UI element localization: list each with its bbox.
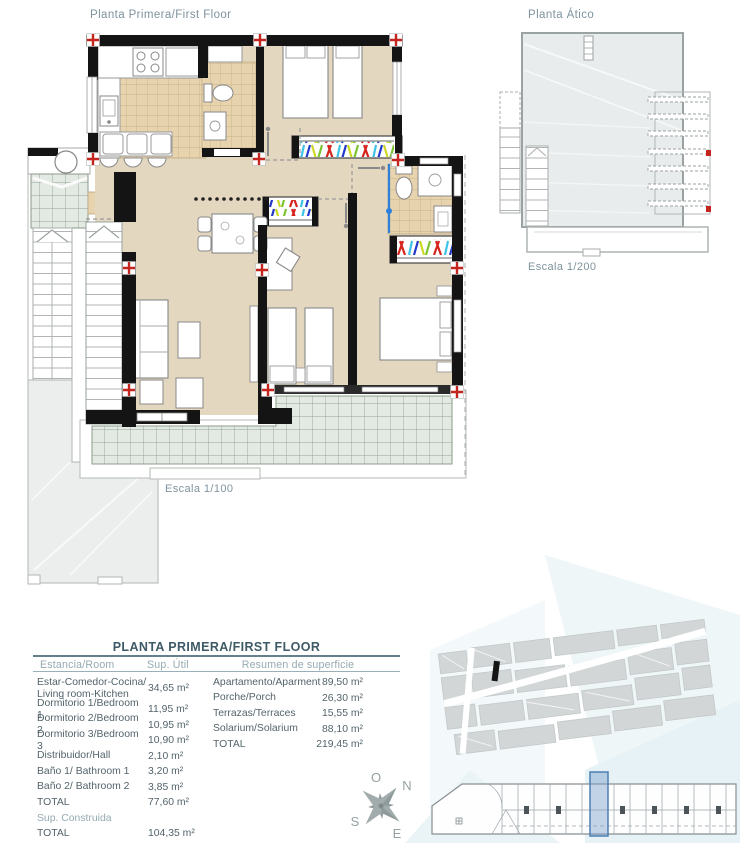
table-row: Porche/Porch 26,30 m²: [213, 691, 363, 707]
floorplan-sheet: { "titles": { "first_floor": "Planta Pri…: [0, 0, 741, 843]
nightstand-icon: [296, 368, 305, 382]
dining-table-icon: [212, 214, 253, 253]
table-rule-header: [33, 671, 400, 672]
column-header-summary: Resumen de superficie: [213, 659, 383, 671]
exterior-staircase: [33, 228, 72, 380]
table-title: PLANTA PRIMERA/FIRST FLOOR: [33, 640, 400, 654]
bathroom-1: [202, 46, 256, 152]
table-rule-top: [33, 655, 400, 657]
sofa-icon: [133, 300, 168, 378]
atico-plan-title: Planta Ático: [528, 9, 594, 21]
useful-total-row: TOTAL 77,60 m²: [37, 795, 209, 811]
nightstand-icon: [437, 286, 452, 296]
kitchen: [98, 46, 206, 167]
wardrobe-bedroom-1: [292, 136, 402, 158]
vanity-icon: [418, 164, 452, 196]
summary-total-row: TOTAL 219,45 m²: [213, 737, 363, 753]
wardrobe-bedroom-3: [390, 236, 460, 263]
table-row: Baño 1/ Bathroom 1 3,20 m²: [37, 764, 209, 780]
room-table: Estar-Comedor-Cocina/ Living room-Kitche…: [37, 675, 209, 842]
compass-south-label: S: [351, 814, 360, 829]
compass-rose-icon: O N S E: [347, 770, 415, 841]
sideboard-icon: [250, 306, 258, 382]
atico-plan: [500, 33, 711, 256]
toilet-icon: [396, 177, 412, 199]
shower-icon: [434, 206, 452, 232]
wardrobe-bedroom-2: [263, 197, 318, 226]
table-row: Apartamento/Aparment 89,50 m²: [213, 675, 363, 691]
bedroom-1: [283, 44, 362, 118]
washbasin-icon: [204, 112, 226, 140]
bedroom-3: [380, 286, 452, 372]
atico-interior-stair: [526, 146, 548, 226]
compass-west-label: O: [371, 770, 381, 785]
compass-north-label: N: [402, 778, 411, 793]
atico-scale-label: Escala 1/200: [528, 261, 596, 273]
table-row: Solarium/Solarium 88,10 m²: [213, 722, 363, 738]
table-row: Baño 2/ Bathroom 2 3,85 m²: [37, 780, 209, 796]
nightstand-icon: [437, 362, 452, 372]
built-total-row: TOTAL 104,35 m²: [37, 826, 209, 842]
table-row: Dormitorio 3/Bedroom 3 10,90 m²: [37, 733, 209, 749]
first-floor-plan-title: Planta Primera/First Floor: [90, 9, 231, 21]
table-row: Distribuidor/Hall 2,10 m²: [37, 749, 209, 765]
table-row: Terrazas/Terraces 15,55 m²: [213, 706, 363, 722]
coffee-table-icon: [178, 322, 200, 358]
stove-icon: [133, 48, 163, 76]
atico-porch: [527, 227, 708, 256]
column-header-room: Estancia/Room: [40, 659, 114, 671]
summary-table: Apartamento/Aparment 89,50 m² Porche/Por…: [213, 675, 363, 753]
main-scale-label: Escala 1/100: [165, 483, 233, 495]
atico-exterior-stair: [500, 92, 520, 213]
armchair-icon: [140, 380, 163, 404]
column-header-area: Sup. Útil: [147, 659, 189, 671]
porch-table: [55, 151, 77, 173]
bathroom-2: [386, 164, 452, 234]
compass-east-label: E: [393, 826, 402, 841]
built-area-header: Sup. Construida: [37, 811, 209, 827]
highlighted-unit: [590, 772, 608, 836]
side-table-icon: [176, 378, 203, 408]
toilet-icon: [213, 85, 233, 101]
